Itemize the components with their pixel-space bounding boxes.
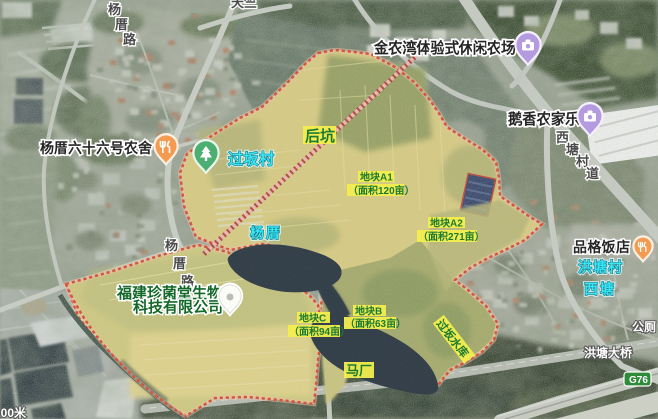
svg-text:金农湾体验式休闲农场: 金农湾体验式休闲农场 [373,39,516,57]
svg-text:公厕: 公厕 [632,319,656,334]
svg-text:科技有限公司: 科技有限公司 [133,298,223,316]
svg-text:G76: G76 [629,375,648,386]
svg-text:（面积94亩）: （面积94亩） [289,325,350,338]
svg-text:杨厝六十六号农舍: 杨厝六十六号农舍 [40,140,153,156]
svg-text:天竺: 天竺 [231,0,257,10]
svg-text:洪塘大桥: 洪塘大桥 [584,345,633,360]
svg-text:厝: 厝 [173,256,186,271]
svg-text:品格饭店: 品格饭店 [573,239,630,255]
svg-text:道: 道 [586,166,599,181]
svg-text:杨: 杨 [108,2,121,17]
svg-text:洪塘村: 洪塘村 [578,259,622,275]
svg-text:地块B: 地块B [355,305,382,318]
svg-text:（面积120亩）: （面积120亩） [348,184,415,197]
svg-text:鹅香农家乐: 鹅香农家乐 [508,110,580,128]
svg-text:过坂村: 过坂村 [228,150,274,168]
svg-text:地块C: 地块C [299,312,326,325]
svg-text:（面积271亩）: （面积271亩） [418,230,485,243]
svg-text:地块A2: 地块A2 [430,217,463,230]
svg-text:后坑: 后坑 [305,127,335,145]
svg-text:路: 路 [123,32,137,47]
svg-text:（面积63亩）: （面积63亩） [345,317,406,330]
svg-text:马厂: 马厂 [346,363,372,378]
svg-text:杨: 杨 [165,238,178,253]
svg-text:厝: 厝 [115,17,128,32]
svg-text:100米: 100米 [0,405,27,419]
svg-text:地块A1: 地块A1 [360,171,393,184]
